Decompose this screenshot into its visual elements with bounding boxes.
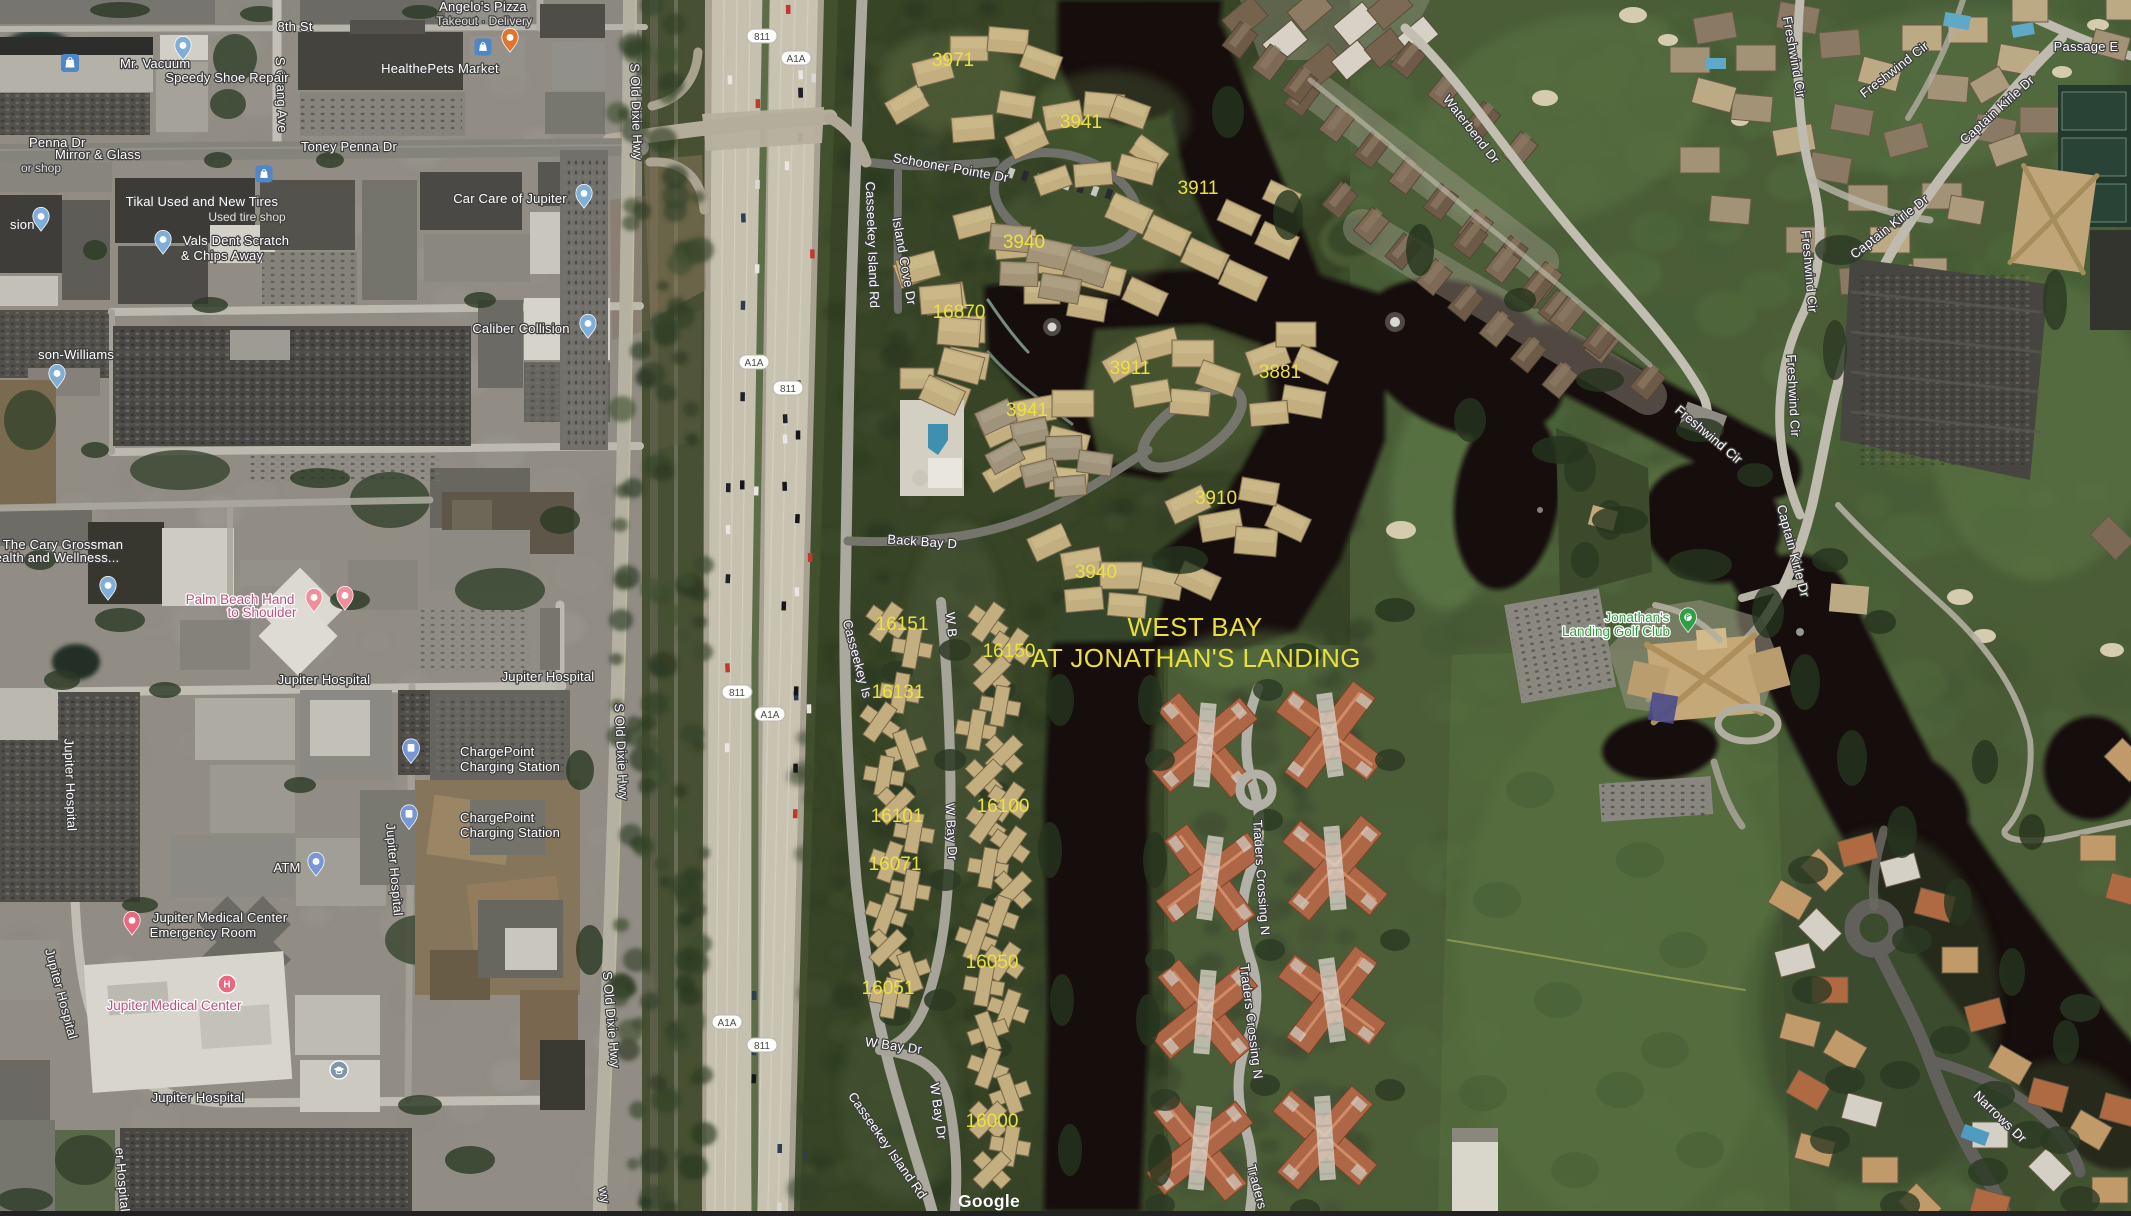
svg-text:Jupiter Hospital: Jupiter Hospital [152, 1090, 245, 1105]
svg-text:AT JONATHAN'S LANDING: AT JONATHAN'S LANDING [1031, 643, 1361, 673]
svg-text:811: 811 [780, 384, 796, 395]
svg-text:3911: 3911 [1110, 358, 1151, 379]
svg-text:3940: 3940 [1003, 232, 1045, 253]
svg-text:16050: 16050 [966, 952, 1019, 973]
svg-text:ATM: ATM [273, 860, 300, 875]
svg-text:Tikal Used and New Tires: Tikal Used and New Tires [126, 194, 279, 209]
svg-text:to Shoulder: to Shoulder [227, 605, 297, 620]
svg-text:Mr. Vacuum: Mr. Vacuum [120, 56, 190, 71]
svg-text:ChargePoint: ChargePoint [460, 744, 535, 759]
svg-text:Speedy Shoe Repair: Speedy Shoe Repair [165, 70, 289, 85]
svg-text:ChargePoint: ChargePoint [460, 810, 535, 825]
svg-text:Charging Station: Charging Station [460, 825, 560, 840]
svg-text:Emergency Room: Emergency Room [150, 925, 257, 940]
svg-text:3911: 3911 [1178, 178, 1219, 199]
svg-text:16150: 16150 [983, 641, 1036, 662]
svg-text:Jupiter Hospital: Jupiter Hospital [278, 672, 371, 687]
svg-text:son-Williams: son-Williams [38, 347, 114, 362]
svg-text:W Bay Dr: W Bay Dr [943, 803, 961, 861]
svg-text:or shop: or shop [21, 161, 61, 175]
svg-text:3941: 3941 [1006, 400, 1048, 421]
svg-text:Used tire shop: Used tire shop [208, 210, 286, 224]
svg-text:811: 811 [754, 1041, 770, 1052]
svg-text:3941: 3941 [1060, 112, 1102, 133]
svg-text:Mirror & Glass: Mirror & Glass [55, 147, 141, 162]
svg-text:Toney Penna Dr: Toney Penna Dr [301, 139, 397, 154]
svg-text:8th St: 8th St [277, 19, 312, 34]
svg-text:Jupiter Medical Center: Jupiter Medical Center [153, 910, 288, 925]
svg-text:16071: 16071 [869, 854, 922, 875]
svg-text:WEST BAY: WEST BAY [1127, 612, 1262, 642]
svg-text:Jonathan's: Jonathan's [1605, 610, 1670, 625]
svg-text:A1A: A1A [761, 710, 780, 721]
svg-text:Vals Dent Scratch: Vals Dent Scratch [183, 233, 289, 248]
svg-text:Google: Google [958, 1191, 1020, 1211]
svg-text:A1A: A1A [787, 54, 806, 65]
svg-text:A1A: A1A [745, 358, 764, 369]
svg-text:wy: wy [595, 1185, 613, 1205]
svg-text:H: H [223, 980, 230, 991]
svg-text:ealth and Wellness...: ealth and Wellness... [0, 550, 119, 565]
svg-text:Charging Station: Charging Station [460, 759, 560, 774]
svg-text:Angelo's Pizza: Angelo's Pizza [439, 0, 527, 14]
svg-text:Landing Golf Club: Landing Golf Club [1562, 624, 1670, 639]
svg-text:811: 811 [729, 688, 745, 699]
svg-text:sion: sion [10, 217, 35, 232]
svg-text:S Orang Ave: S Orang Ave [273, 57, 291, 133]
svg-text:3910: 3910 [1195, 488, 1237, 509]
svg-text:16151: 16151 [876, 614, 929, 635]
svg-text:Takeout · Delivery: Takeout · Delivery [436, 14, 532, 28]
svg-text:16100: 16100 [977, 796, 1030, 817]
svg-text:16000: 16000 [966, 1111, 1019, 1132]
svg-text:16870: 16870 [933, 302, 986, 323]
svg-text:HealthePets Market: HealthePets Market [381, 61, 499, 76]
svg-text:& Chips Away: & Chips Away [181, 248, 264, 263]
svg-text:16131: 16131 [872, 682, 925, 703]
svg-text:Jupiter Hospital: Jupiter Hospital [502, 669, 595, 684]
svg-text:Caliber Collision: Caliber Collision [472, 321, 569, 336]
svg-text:811: 811 [754, 32, 770, 43]
svg-text:Car Care of Jupiter: Car Care of Jupiter [453, 191, 567, 206]
svg-text:Jupiter Medical Center: Jupiter Medical Center [106, 998, 242, 1013]
svg-text:W B: W B [943, 611, 960, 637]
svg-text:3940: 3940 [1075, 562, 1117, 583]
svg-text:16101: 16101 [871, 806, 924, 827]
svg-text:3971: 3971 [932, 50, 974, 71]
svg-text:A1A: A1A [718, 1018, 737, 1029]
svg-text:3881: 3881 [1259, 362, 1301, 383]
svg-text:16051: 16051 [862, 978, 915, 999]
svg-text:Passage E: Passage E [2054, 39, 2119, 54]
